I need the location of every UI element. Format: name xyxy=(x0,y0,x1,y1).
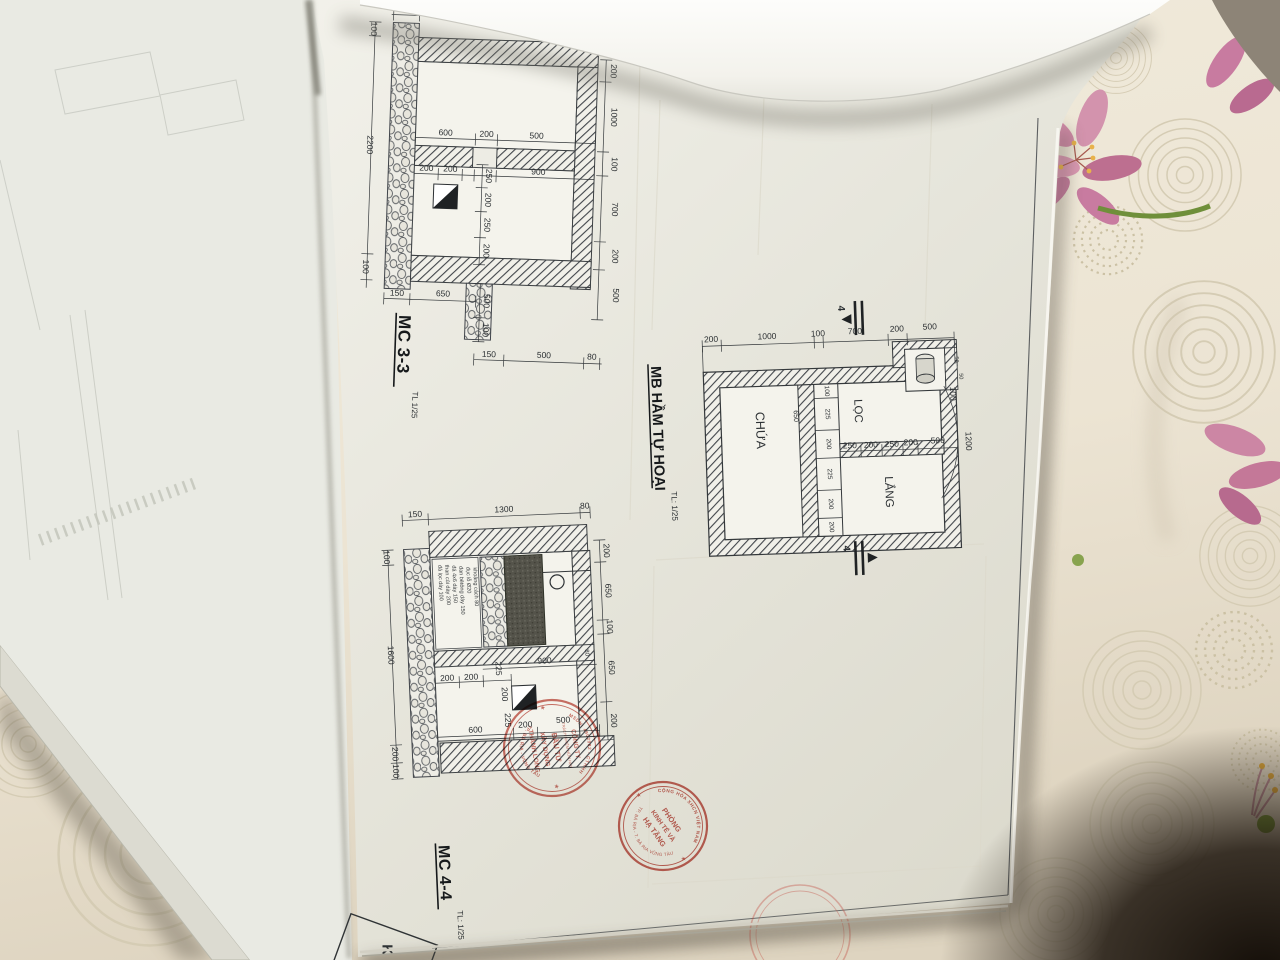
dim-label: 225 xyxy=(493,661,504,676)
dim-label: 250 xyxy=(482,218,492,233)
dim-label: 80 xyxy=(583,649,589,657)
dim-label: 200 xyxy=(419,163,434,173)
dim-label: 225 xyxy=(824,409,831,420)
dim-label: 200 xyxy=(483,193,493,208)
dim-label: 100 xyxy=(823,386,830,397)
room-label-loc: LỌC xyxy=(851,399,864,423)
dim-label: 1000 xyxy=(609,108,620,128)
dim-label: 50 xyxy=(953,356,959,362)
dim-label: 200 xyxy=(704,334,719,344)
dim-label: 150 xyxy=(408,509,423,520)
dim-label: 150 xyxy=(390,288,405,298)
dim-label: 650 xyxy=(603,583,614,598)
scale-label: TL 1/25 xyxy=(410,391,420,419)
dim-label: 2200 xyxy=(365,135,376,155)
dim-label: 200 xyxy=(601,543,612,558)
section-number: 4 xyxy=(835,305,846,311)
dim-label: 100 xyxy=(382,550,393,565)
photo-scene: 150 100 2200 100 600 200 500 200 200 900… xyxy=(0,0,1280,960)
scale-label: TL: 1/25 xyxy=(669,491,679,521)
gravel-layer xyxy=(480,556,508,647)
dim-label: 200 xyxy=(827,498,834,509)
dim-label: 200 xyxy=(864,439,879,449)
dim-label: 100 xyxy=(605,619,616,634)
dim-label: 650 xyxy=(792,410,799,422)
dim-label: 200 xyxy=(828,521,835,532)
section-number: 4 xyxy=(840,545,851,551)
dim-label: 600 xyxy=(438,127,453,137)
scene-svg: 150 100 2200 100 600 200 500 200 200 900… xyxy=(0,0,1280,960)
chamber xyxy=(415,61,578,151)
dim-label: 900 xyxy=(537,655,552,666)
dim-label: 1000 xyxy=(757,331,777,342)
dim-label: 250 xyxy=(843,440,858,450)
dim-label: 500 xyxy=(611,288,621,303)
dim-label: 150 xyxy=(482,349,497,359)
room-label-chua: CHỨA xyxy=(753,412,769,450)
charcoal-layer xyxy=(504,555,546,647)
dim-label: 80 xyxy=(587,352,597,362)
dim-label: 100 xyxy=(609,157,619,172)
dim-label: 200 xyxy=(390,747,401,762)
dim-label: 100 xyxy=(811,328,826,338)
dim-label: 500 xyxy=(482,294,492,309)
slab-hatch xyxy=(410,255,591,287)
dim-label: 100 xyxy=(391,764,402,779)
dim-label: 650 xyxy=(436,288,451,298)
dim-label: 100 xyxy=(948,386,958,401)
dim-label: 1600 xyxy=(386,646,397,666)
dim-label: 50 xyxy=(957,373,963,379)
dim-label: 600 xyxy=(468,724,483,735)
dim-label: 500 xyxy=(930,435,945,445)
dim-label: 250 xyxy=(484,169,494,184)
dim-label: 200 xyxy=(464,671,479,682)
room-label-lang: LẮNG xyxy=(882,476,896,508)
dim-label: 200 xyxy=(825,439,832,450)
dim-label: 200 xyxy=(479,129,494,139)
dim-label: 250 xyxy=(885,439,900,449)
flower-bud-small xyxy=(1072,554,1084,566)
dim-label: 1200 xyxy=(963,432,974,452)
dim-label: 700 xyxy=(610,202,620,217)
dim-label: 200 xyxy=(443,163,458,173)
room-chua xyxy=(720,385,803,540)
dim-label: 200 xyxy=(904,437,919,447)
dim-label: 1300 xyxy=(494,504,514,515)
dim-label: 650 xyxy=(607,660,618,675)
dim-label: 200 xyxy=(481,244,491,259)
dim-label: 100 xyxy=(481,323,491,338)
dim-label: 80 xyxy=(580,500,590,510)
dim-label: 500 xyxy=(922,321,937,331)
dim-label: 500 xyxy=(529,130,544,140)
dim-label: 500 xyxy=(537,350,552,360)
note-line: đục lỗ Ø20 xyxy=(464,567,472,594)
dim-label: 900 xyxy=(531,166,546,176)
dim-label: 200 xyxy=(609,713,620,728)
dim-label: 200 xyxy=(500,687,511,702)
dim-label: 200 xyxy=(440,672,455,683)
corner-shadow xyxy=(940,700,1280,960)
dim-label: 100 xyxy=(361,259,371,274)
scale-label: TL: 1/25 xyxy=(455,910,465,940)
baffle-cells xyxy=(814,384,843,537)
dim-label: 225 xyxy=(826,468,833,479)
dim-label: 200 xyxy=(610,249,620,264)
dim-label: 200 xyxy=(890,323,905,333)
